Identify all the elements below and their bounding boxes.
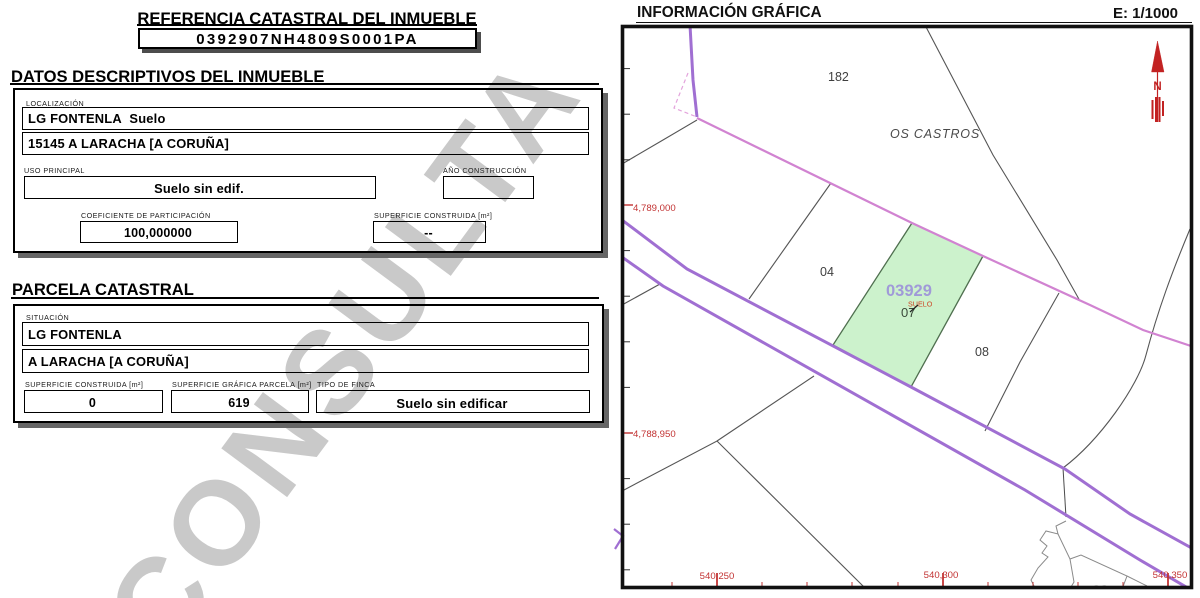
- svg-text:540,350: 540,350: [1153, 570, 1188, 581]
- svg-text:540,250: 540,250: [700, 571, 735, 582]
- svg-text:OS CASTROS: OS CASTROS: [890, 127, 980, 141]
- svg-text:540,300: 540,300: [924, 570, 959, 581]
- svg-text:03929: 03929: [886, 282, 932, 300]
- svg-text:182: 182: [828, 70, 849, 84]
- svg-text:N: N: [1153, 81, 1161, 93]
- svg-text:08: 08: [975, 345, 989, 359]
- svg-text:04: 04: [820, 265, 834, 279]
- svg-text:4,788,950: 4,788,950: [633, 429, 676, 440]
- svg-text:07: 07: [901, 305, 915, 320]
- svg-text:4,789,000: 4,789,000: [633, 203, 676, 214]
